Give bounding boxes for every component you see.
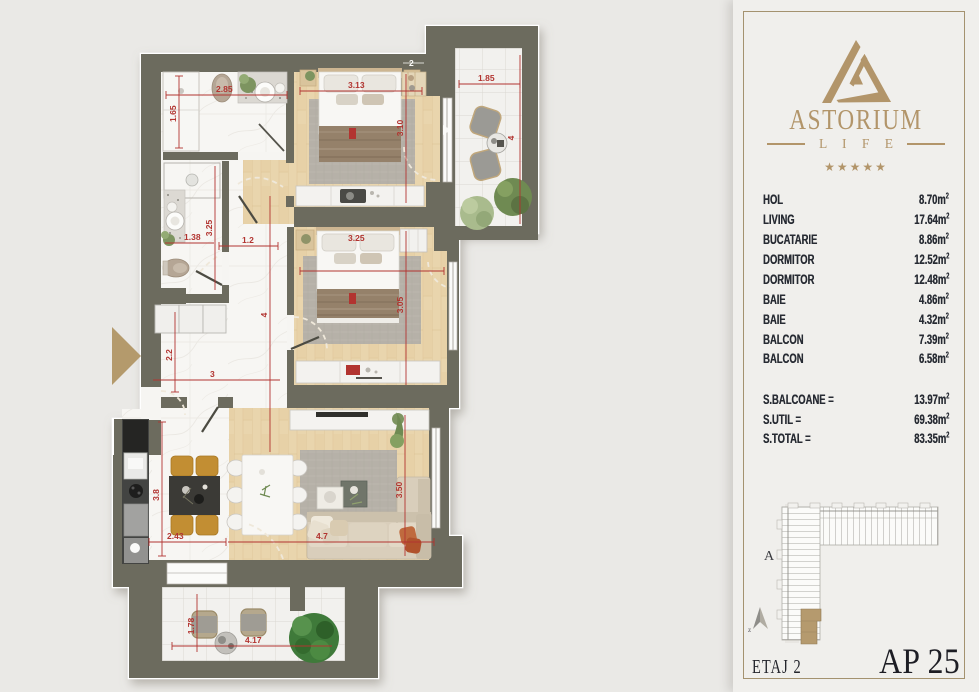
svg-text:4.7: 4.7 [316, 531, 328, 541]
svg-text:4: 4 [259, 312, 269, 317]
svg-text:3.25: 3.25 [348, 233, 365, 243]
svg-text:1.78: 1.78 [186, 617, 196, 634]
svg-text:3.13: 3.13 [348, 80, 365, 90]
svg-text:1.85: 1.85 [478, 73, 495, 83]
svg-text:3: 3 [210, 369, 215, 379]
svg-text:2.85: 2.85 [216, 84, 233, 94]
svg-text:4: 4 [506, 135, 516, 140]
svg-text:3.10: 3.10 [395, 119, 405, 136]
svg-text:3.8: 3.8 [151, 489, 161, 501]
svg-text:3.05: 3.05 [395, 296, 405, 313]
svg-text:1.38: 1.38 [184, 232, 201, 242]
svg-text:1.2: 1.2 [242, 235, 254, 245]
svg-text:2: 2 [409, 58, 414, 68]
svg-text:1.65: 1.65 [168, 105, 178, 122]
svg-text:z: z [748, 626, 751, 634]
svg-text:4.17: 4.17 [245, 635, 262, 645]
svg-text:2.2: 2.2 [164, 349, 174, 361]
svg-text:3.50: 3.50 [394, 481, 404, 498]
svg-text:3.25: 3.25 [204, 219, 214, 236]
svg-text:2.43: 2.43 [167, 531, 184, 541]
